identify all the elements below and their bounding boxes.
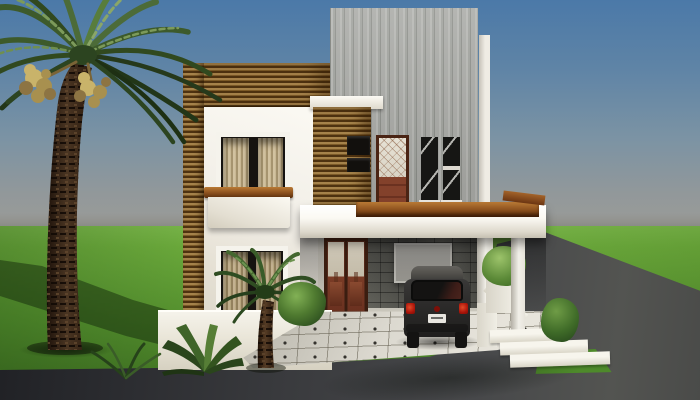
- car-rear-window: [411, 280, 463, 301]
- car-taillight-right: [459, 303, 468, 314]
- car-bumper: [406, 324, 468, 332]
- grass-tuft: [86, 340, 166, 380]
- car-license-plate: [428, 314, 446, 323]
- door-leaf-right: [347, 241, 365, 312]
- window-transom-bar: [443, 166, 460, 170]
- upper-balcony-door: [376, 135, 409, 208]
- carport-column-rear: [511, 229, 525, 334]
- vent-slot: [347, 136, 370, 155]
- terrace-wood-rail: [356, 202, 539, 217]
- car-taillight-left: [406, 303, 415, 314]
- window-bush: [278, 282, 326, 326]
- car-wheel-right: [455, 332, 467, 348]
- door-glass: [379, 138, 406, 177]
- agave-plant: [158, 316, 250, 378]
- car-badge: [434, 306, 440, 312]
- door-leaf-left: [327, 241, 345, 312]
- vent-slot: [347, 158, 370, 172]
- scene: [0, 0, 700, 400]
- curtain-right: [258, 138, 284, 189]
- concrete-tower-white-trim: [479, 35, 490, 226]
- stairs-bush: [541, 298, 579, 342]
- entry-double-door: [324, 238, 368, 315]
- central-wood-column: [313, 107, 371, 206]
- narrow-black-window: [421, 137, 438, 201]
- car-wheel-left: [407, 332, 419, 348]
- parked-car: [404, 266, 470, 350]
